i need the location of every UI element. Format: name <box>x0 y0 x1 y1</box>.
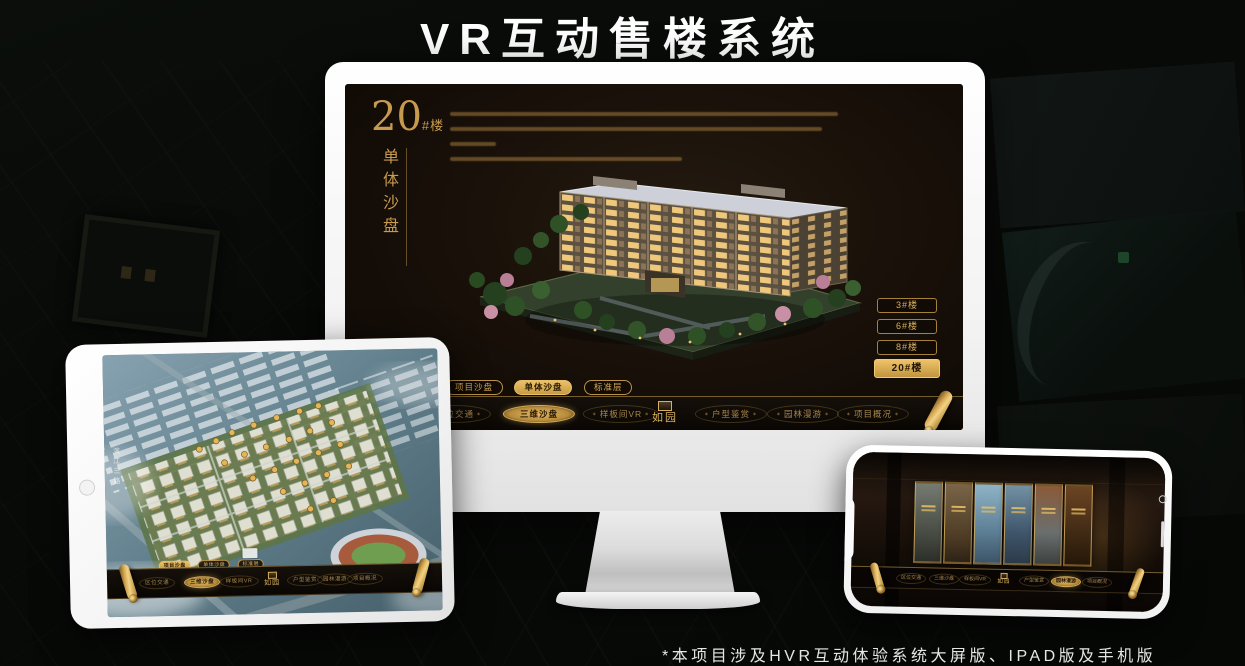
headline-subtitle-vertical: 单体沙盘 <box>377 148 407 266</box>
page-title: VR互动售楼系统 <box>0 3 1245 67</box>
monitor-stand-base <box>556 592 760 609</box>
floor-button-6[interactable]: 6#楼 <box>877 319 937 334</box>
headline-suffix: #楼 <box>422 118 444 133</box>
brand-logo: 如园 <box>264 572 280 587</box>
background-plaque <box>72 214 220 338</box>
scene-card[interactable] <box>1003 483 1033 566</box>
scroll-menu-icon[interactable] <box>869 562 885 591</box>
scene-card-label <box>922 505 936 507</box>
nav-item-showroom-vr[interactable]: 样板间VR <box>220 575 259 588</box>
seal-icon <box>658 401 672 411</box>
promo-stage: VR互动售楼系统 <box>0 0 1245 666</box>
description-line <box>450 142 496 146</box>
tablet-camera-icon <box>79 479 95 495</box>
phone-camera-icon <box>1159 495 1167 503</box>
floor-button-3[interactable]: 3#楼 <box>877 298 937 313</box>
scroll-menu-icon[interactable] <box>118 563 138 600</box>
scene-card-label <box>981 506 995 508</box>
phone-device: 区位交通 三维沙盘 样板间VR 如园 户型鉴赏 园林漫游 项目概况 <box>843 445 1172 620</box>
scene-card[interactable] <box>913 481 943 564</box>
nav-item-3d-sandtable[interactable]: 三维沙盘 <box>503 405 575 423</box>
tablet-screen: 滨江三路 项目沙盘 单体沙盘 标准层 区位交通 三维沙盘 样板间VR 如园 户型… <box>102 348 442 617</box>
scene-card[interactable] <box>1033 484 1063 567</box>
nav-item-project-overview[interactable]: 项目概况 <box>347 572 383 585</box>
nav-item-floorplans[interactable]: 户型鉴赏 <box>695 405 767 423</box>
nav-item-showroom-vr[interactable]: 样板间VR <box>959 574 991 586</box>
nav-item-3d-sandtable[interactable]: 三维沙盘 <box>929 573 959 585</box>
floor-button-8[interactable]: 8#楼 <box>877 340 937 355</box>
nav-item-3d-sandtable[interactable]: 三维沙盘 <box>184 576 220 589</box>
tab-single-sandtable[interactable]: 单体沙盘 <box>514 380 572 395</box>
phone-speaker <box>1161 521 1165 547</box>
background-screenshot-panel <box>990 62 1245 229</box>
floor-button-20[interactable]: 20#楼 <box>874 359 940 378</box>
scene-card-label <box>1041 508 1055 510</box>
scene-card[interactable] <box>943 482 973 565</box>
brand-logo: 如园 <box>652 401 678 423</box>
description-line <box>450 127 822 131</box>
description-line <box>450 157 682 161</box>
nav-item-garden-tour[interactable]: 园林漫游 <box>1051 576 1081 588</box>
background-developer-logo <box>1118 252 1129 263</box>
scene-card[interactable] <box>1063 484 1093 567</box>
scene-card[interactable] <box>973 482 1003 565</box>
brand-logo: 如园 <box>997 573 1010 586</box>
scene-card-label <box>951 506 965 508</box>
nav-item-location[interactable]: 区位交通 <box>139 577 175 590</box>
scene-card-label <box>1011 507 1025 509</box>
monitor-sub-tabs: 项目沙盘 单体沙盘 标准层 <box>445 377 639 395</box>
phone-screen: 区位交通 三维沙盘 样板间VR 如园 户型鉴赏 园林漫游 项目概况 <box>850 452 1165 613</box>
description-line <box>450 112 838 116</box>
nav-item-location[interactable]: 区位交通 <box>896 573 926 585</box>
nav-item-floorplans[interactable]: 户型鉴赏 <box>1019 575 1049 587</box>
scroll-menu-icon[interactable] <box>412 557 431 594</box>
scroll-menu-icon[interactable] <box>1129 567 1146 596</box>
footnote: *本项目涉及HVR互动体验系统大屏版、IPAD版及手机版 <box>662 642 1156 666</box>
road-label: 滨江三路 <box>110 447 121 487</box>
tablet-device: 滨江三路 项目沙盘 单体沙盘 标准层 区位交通 三维沙盘 样板间VR 如园 户型… <box>65 337 455 629</box>
nav-item-project-overview[interactable]: 项目概况 <box>837 405 909 423</box>
scene-card-label <box>1071 508 1085 510</box>
nav-item-garden-tour[interactable]: 园林漫游 <box>767 405 839 423</box>
monitor-stand-neck <box>585 511 735 595</box>
tab-project-sandtable[interactable]: 项目沙盘 <box>445 380 503 395</box>
headline-building-number: 20#楼 <box>371 94 444 140</box>
tab-standard-floor[interactable]: 标准层 <box>584 380 633 395</box>
nav-item-showroom-vr[interactable]: 样板间VR <box>583 405 659 423</box>
nav-item-project-overview[interactable]: 项目概况 <box>1082 577 1112 589</box>
phone-notch <box>844 497 854 561</box>
